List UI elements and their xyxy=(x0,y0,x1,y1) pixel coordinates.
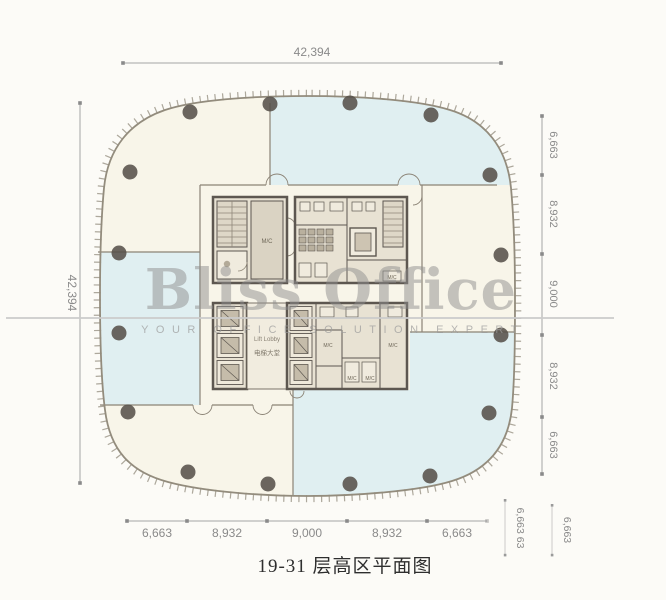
lift-lobby-label-cn: 电梯大堂 xyxy=(254,348,281,357)
dim-label-bottom-1: 6,663 xyxy=(142,526,172,540)
dim-label-bottom-2: 8,932 xyxy=(212,526,242,540)
column-dot xyxy=(112,326,127,341)
column-dot xyxy=(261,477,276,492)
mc-label: M/C xyxy=(365,376,375,382)
watermark-tagline: YOUR OFFICE SOLUTION EXPERT xyxy=(141,324,525,336)
column-dot xyxy=(424,108,439,123)
lift-lobby-label-en: Lift Lobby xyxy=(254,337,280,343)
column-dot xyxy=(482,406,497,421)
dim-label-bottom-4: 8,932 xyxy=(372,526,402,540)
zone-top-right-cyan xyxy=(270,88,520,185)
mc-label: M/C xyxy=(347,376,357,382)
dim-label-bottom-5: 6,663 xyxy=(442,526,472,540)
dim-label-right-4: 8,932 xyxy=(547,362,559,390)
floor-plan-drawing: M/C M/C xyxy=(0,0,666,600)
mc-label: M/C xyxy=(323,343,333,349)
watermark-brand: Bliss Office xyxy=(145,257,517,323)
column-dot xyxy=(123,165,138,180)
column-dot xyxy=(263,97,278,112)
mc-label: M/C xyxy=(388,343,398,349)
plan-title: 19-31 层高区平面图 xyxy=(257,555,432,577)
dim-label-left-total: 42,394 xyxy=(65,275,79,312)
column-dot xyxy=(121,405,136,420)
column-dot xyxy=(483,168,498,183)
watermark: Bliss Office YOUR OFFICE SOLUTION EXPERT xyxy=(6,257,614,336)
column-dot xyxy=(181,465,196,480)
dim-label-right-5: 6,663 xyxy=(547,431,559,459)
column-dot xyxy=(112,246,127,261)
scanned-floor-plan-page: M/C M/C xyxy=(0,0,666,600)
column-dot xyxy=(183,105,198,120)
dim-label-right-3: 9,000 xyxy=(547,280,559,308)
column-dot xyxy=(343,96,358,111)
dim-label-right-1: 6,663 xyxy=(547,131,559,159)
stair-upper-right xyxy=(383,201,403,247)
mc-room-label: M/C xyxy=(262,239,274,245)
dim-label-corner-extra-1: 6,663 63 xyxy=(514,508,526,549)
dim-line-corner-extra xyxy=(505,500,552,556)
dim-label-right-2: 8,932 xyxy=(547,200,559,228)
dim-label-corner-extra-2: 6,663 xyxy=(561,517,573,543)
column-dot xyxy=(423,469,438,484)
column-dot xyxy=(343,477,358,492)
dim-label-top-total: 42,394 xyxy=(294,45,331,59)
dim-label-bottom-3: 9,000 xyxy=(292,526,322,540)
